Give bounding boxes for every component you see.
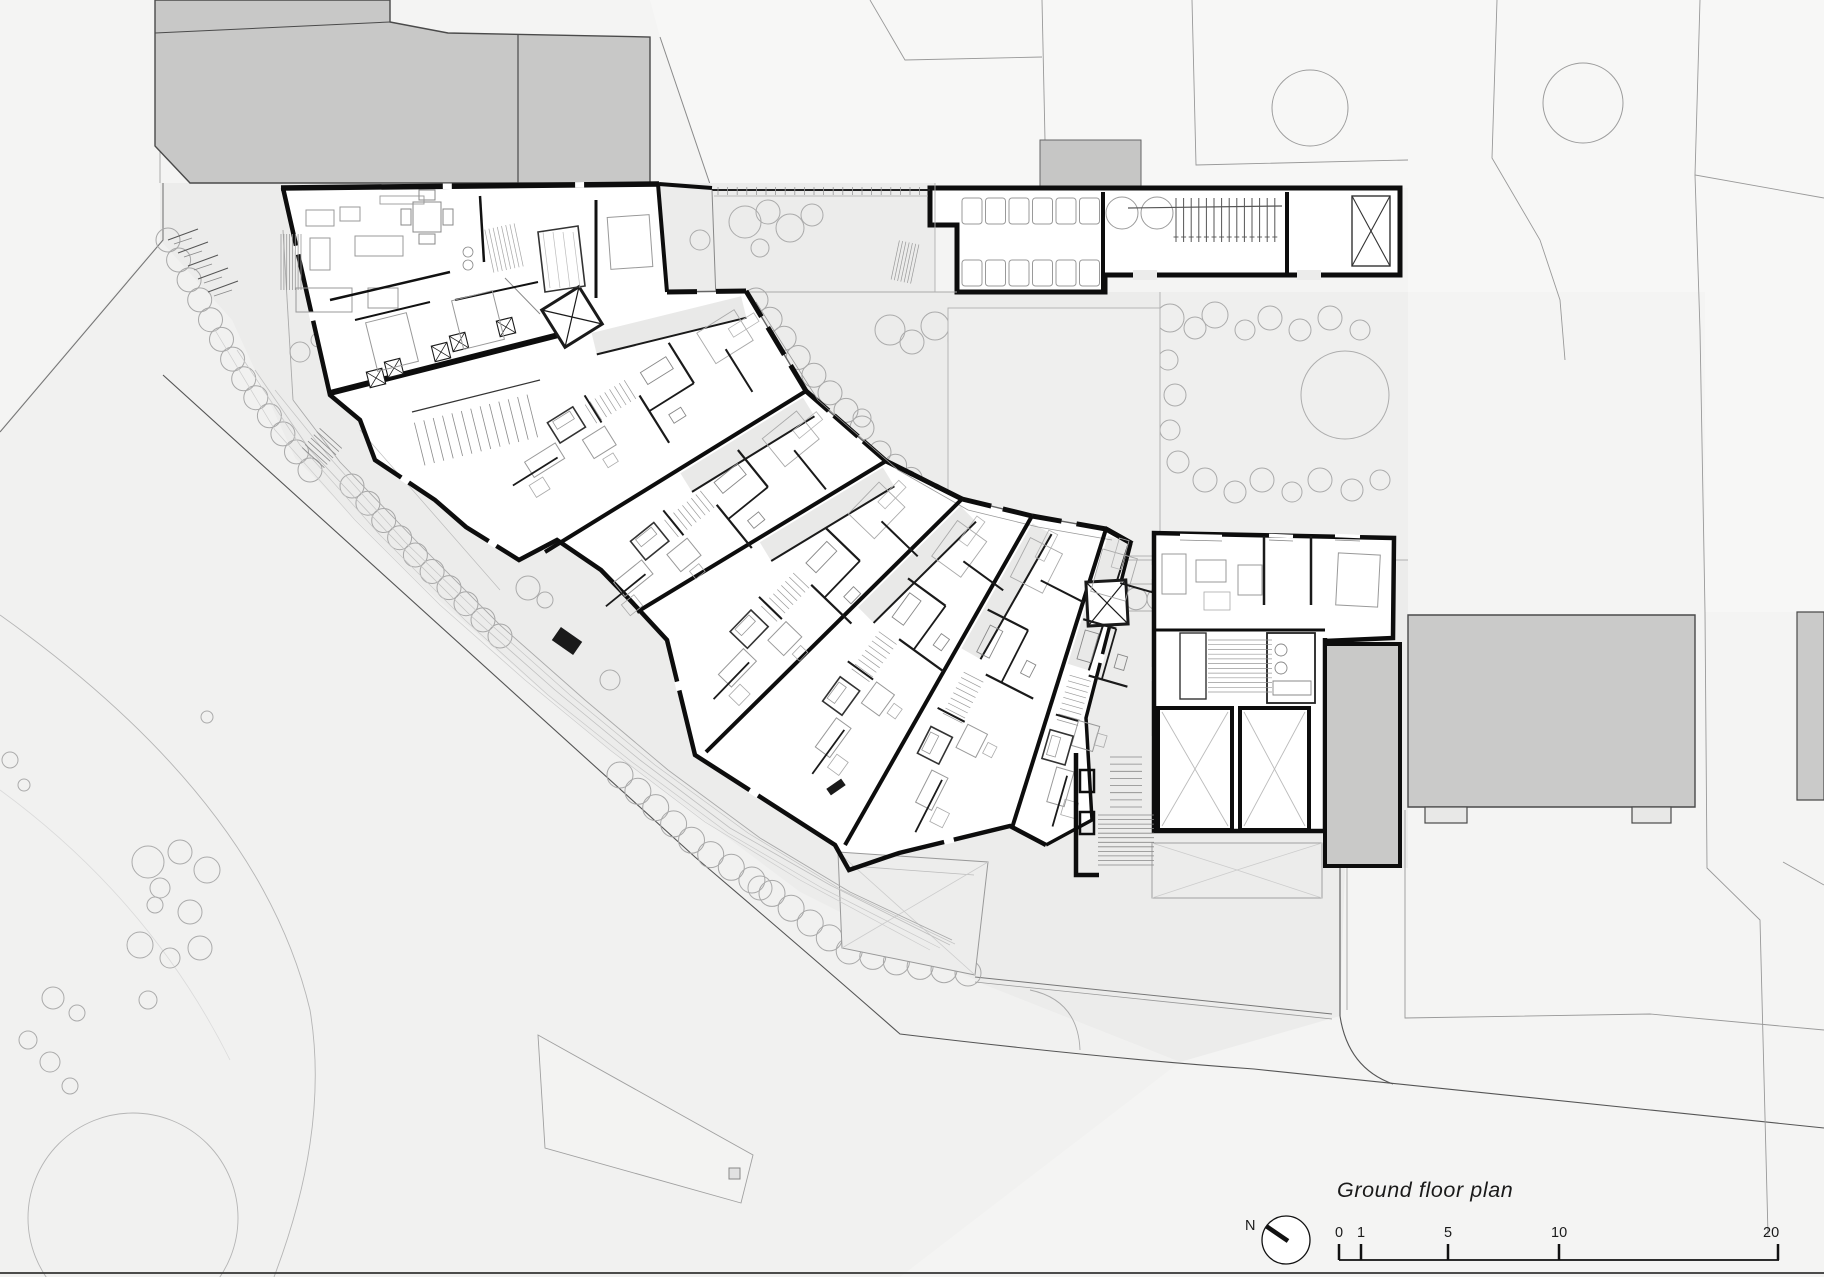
- svg-text:0: 0: [1335, 1225, 1343, 1241]
- svg-text:1: 1: [1357, 1225, 1365, 1241]
- svg-text:5: 5: [1444, 1225, 1452, 1241]
- svg-text:Ground floor plan: Ground floor plan: [1337, 1178, 1513, 1202]
- svg-text:N: N: [1245, 1218, 1255, 1234]
- svg-text:10: 10: [1551, 1225, 1567, 1241]
- svg-text:20: 20: [1763, 1225, 1779, 1241]
